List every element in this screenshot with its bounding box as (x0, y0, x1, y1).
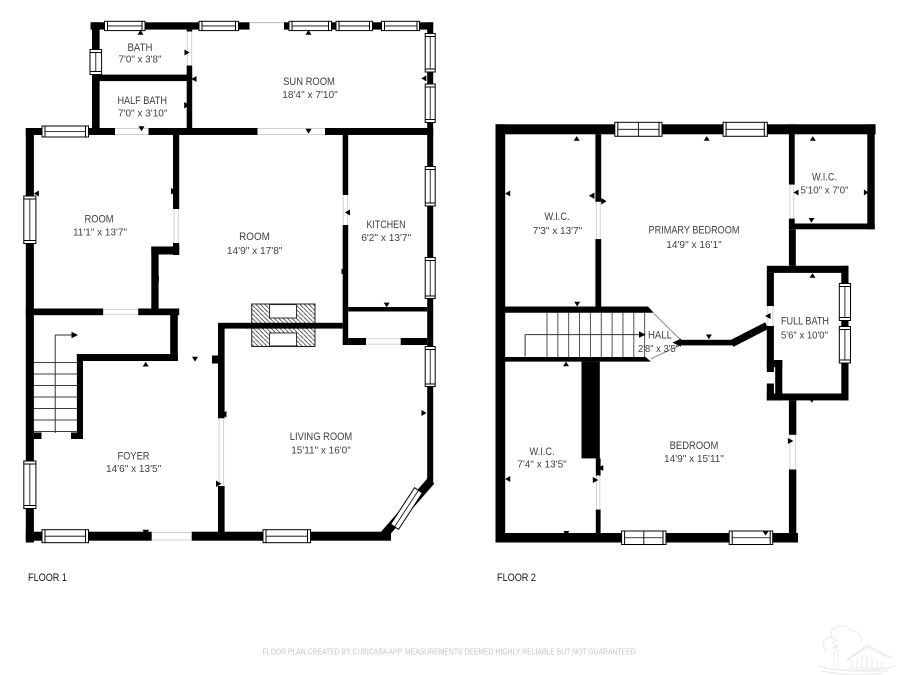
svg-text:PRIMARY BEDROOM: PRIMARY BEDROOM (649, 225, 740, 237)
svg-text:6'2" x 13'7": 6'2" x 13'7" (361, 233, 411, 244)
svg-text:2'8" x 3'5": 2'8" x 3'5" (638, 344, 679, 355)
svg-text:15'11" x 16'0": 15'11" x 16'0" (291, 445, 351, 456)
svg-text:BATH: BATH (128, 42, 153, 54)
svg-text:HALL: HALL (648, 330, 672, 342)
svg-text:FLOOR PLAN CREATED BY CUBICASA: FLOOR PLAN CREATED BY CUBICASA APP. MEAS… (263, 648, 638, 657)
svg-text:ROOM: ROOM (85, 214, 114, 226)
svg-text:FOYER: FOYER (118, 450, 150, 462)
svg-text:W.I.C.: W.I.C. (530, 446, 555, 458)
svg-text:FULL BATH: FULL BATH (781, 315, 829, 327)
svg-text:W.I.C.: W.I.C. (545, 211, 570, 223)
svg-text:HALF BATH: HALF BATH (117, 95, 167, 107)
svg-text:7'0" x 3'10": 7'0" x 3'10" (118, 108, 168, 119)
svg-text:5'6" x 10'0": 5'6" x 10'0" (781, 331, 828, 342)
svg-text:18'4" x 7'10": 18'4" x 7'10" (282, 90, 338, 101)
svg-text:7'4" x 13'5": 7'4" x 13'5" (517, 460, 567, 471)
svg-text:14'9" x 15'11": 14'9" x 15'11" (664, 454, 724, 465)
svg-text:KITCHEN: KITCHEN (367, 219, 406, 231)
svg-text:W.I.C.: W.I.C. (812, 171, 837, 183)
svg-text:SUN ROOM: SUN ROOM (283, 76, 335, 88)
svg-text:LIVING ROOM: LIVING ROOM (290, 431, 353, 443)
svg-text:ROOM: ROOM (239, 231, 270, 243)
svg-text:FLOOR 1: FLOOR 1 (28, 572, 67, 584)
svg-text:BEDROOM: BEDROOM (670, 440, 719, 452)
svg-text:11'1" x 13'7": 11'1" x 13'7" (73, 228, 127, 239)
svg-text:7'0" x 3'8": 7'0" x 3'8" (119, 55, 162, 66)
svg-text:7'3" x 13'7": 7'3" x 13'7" (533, 226, 583, 237)
svg-text:14'9" x 16'1": 14'9" x 16'1" (666, 240, 722, 251)
svg-text:FLOOR 2: FLOOR 2 (497, 572, 536, 584)
svg-text:14'6" x 13'5": 14'6" x 13'5" (106, 464, 161, 475)
svg-text:5'10" x 7'0": 5'10" x 7'0" (801, 186, 849, 197)
svg-text:14'9" x 17'8": 14'9" x 17'8" (227, 246, 283, 257)
